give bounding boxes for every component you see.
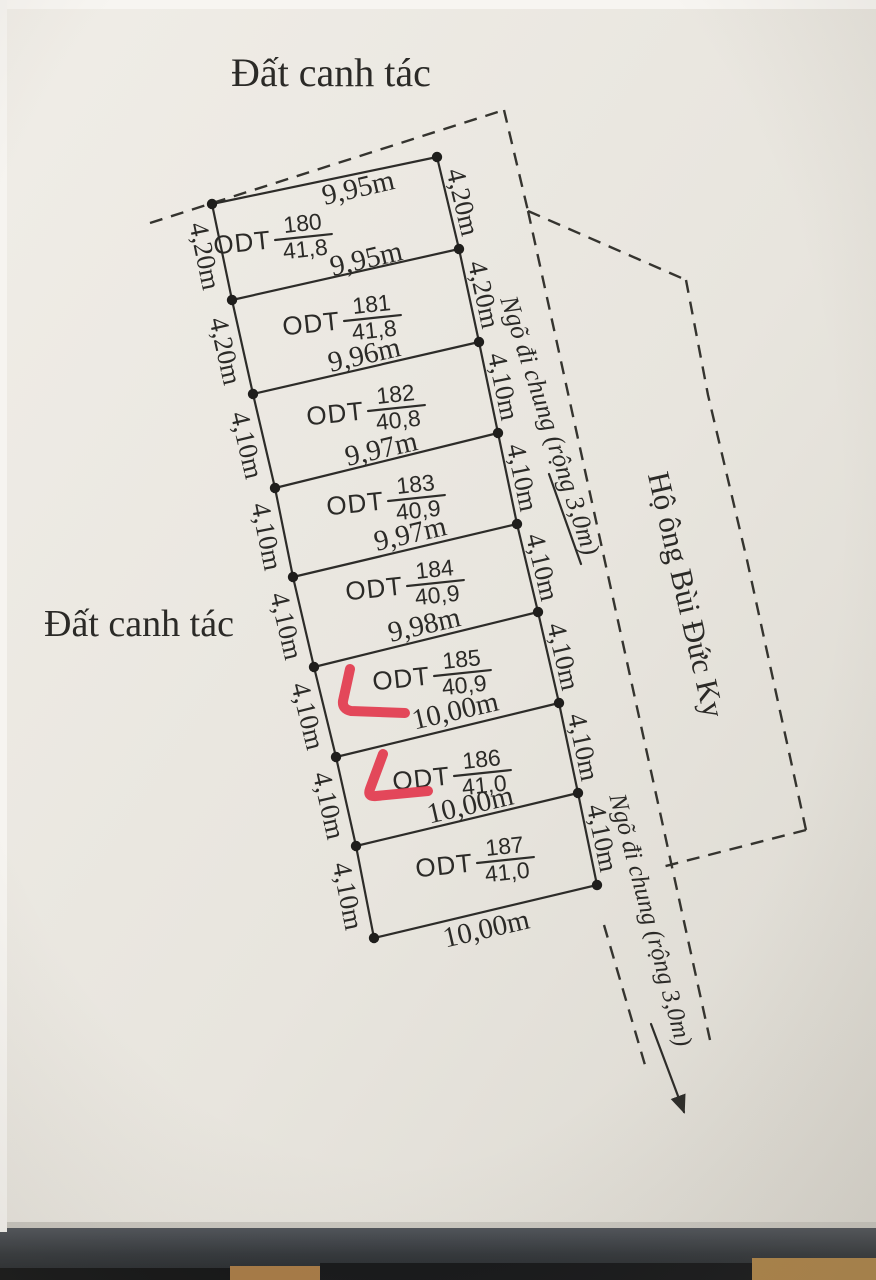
land-use-code: ODT	[325, 486, 386, 522]
wood-floor-patch	[752, 1258, 876, 1280]
survey-point	[512, 519, 522, 529]
survey-point	[592, 880, 602, 890]
survey-point	[533, 607, 543, 617]
table-shadow	[0, 1268, 232, 1280]
survey-point	[248, 389, 258, 399]
survey-point	[351, 841, 361, 851]
survey-point	[474, 337, 484, 347]
parcel-area: 41,0	[461, 770, 508, 801]
land-use-code: ODT	[281, 306, 342, 342]
scanned-cadastral-photo: 9,95m9,95m9,96m9,97m9,97m9,98m10,00m10,0…	[0, 0, 876, 1280]
cultivated-land-label-top: Đất canh tác	[231, 50, 431, 95]
survey-point	[270, 483, 280, 493]
parcel-number: 184	[414, 554, 455, 584]
parcel-area: 40,9	[395, 495, 442, 526]
land-use-code: ODT	[371, 661, 432, 697]
wood-floor-patch	[230, 1266, 326, 1280]
survey-point	[493, 428, 503, 438]
survey-point	[331, 752, 341, 762]
cultivated-land-label-left: Đất canh tác	[44, 603, 234, 645]
parcel-area: 41,8	[282, 234, 329, 265]
parcel-area: 40,9	[414, 580, 461, 611]
parcel-number: 183	[395, 469, 436, 499]
parcel-area: 40,9	[441, 670, 488, 701]
parcel-area: 41,8	[351, 315, 398, 346]
parcel-number: 187	[484, 831, 525, 861]
survey-point	[309, 662, 319, 672]
survey-point	[454, 244, 464, 254]
survey-point	[288, 572, 298, 582]
plot-diagram: 9,95m9,95m9,96m9,97m9,97m9,98m10,00m10,0…	[0, 0, 876, 1280]
survey-point	[207, 199, 217, 209]
parcel-number: 186	[461, 744, 502, 774]
parcel-area: 40,8	[375, 405, 422, 436]
survey-point	[432, 152, 442, 162]
parcel-number: 182	[375, 379, 416, 409]
land-use-code: ODT	[305, 396, 366, 432]
survey-point	[554, 698, 564, 708]
photo-edge-top	[0, 0, 876, 9]
photo-edge-left	[0, 0, 7, 1232]
parcel-area: 41,0	[484, 857, 531, 888]
survey-point	[227, 295, 237, 305]
land-use-code: ODT	[212, 225, 273, 261]
parcel-number: 185	[441, 644, 482, 674]
land-use-code: ODT	[344, 571, 405, 607]
table-leg-shadow	[320, 1263, 754, 1280]
parcel-number: 180	[282, 208, 323, 238]
survey-point	[369, 933, 379, 943]
land-use-code: ODT	[414, 848, 475, 884]
parcel-number: 181	[351, 289, 392, 319]
survey-point	[573, 788, 583, 798]
